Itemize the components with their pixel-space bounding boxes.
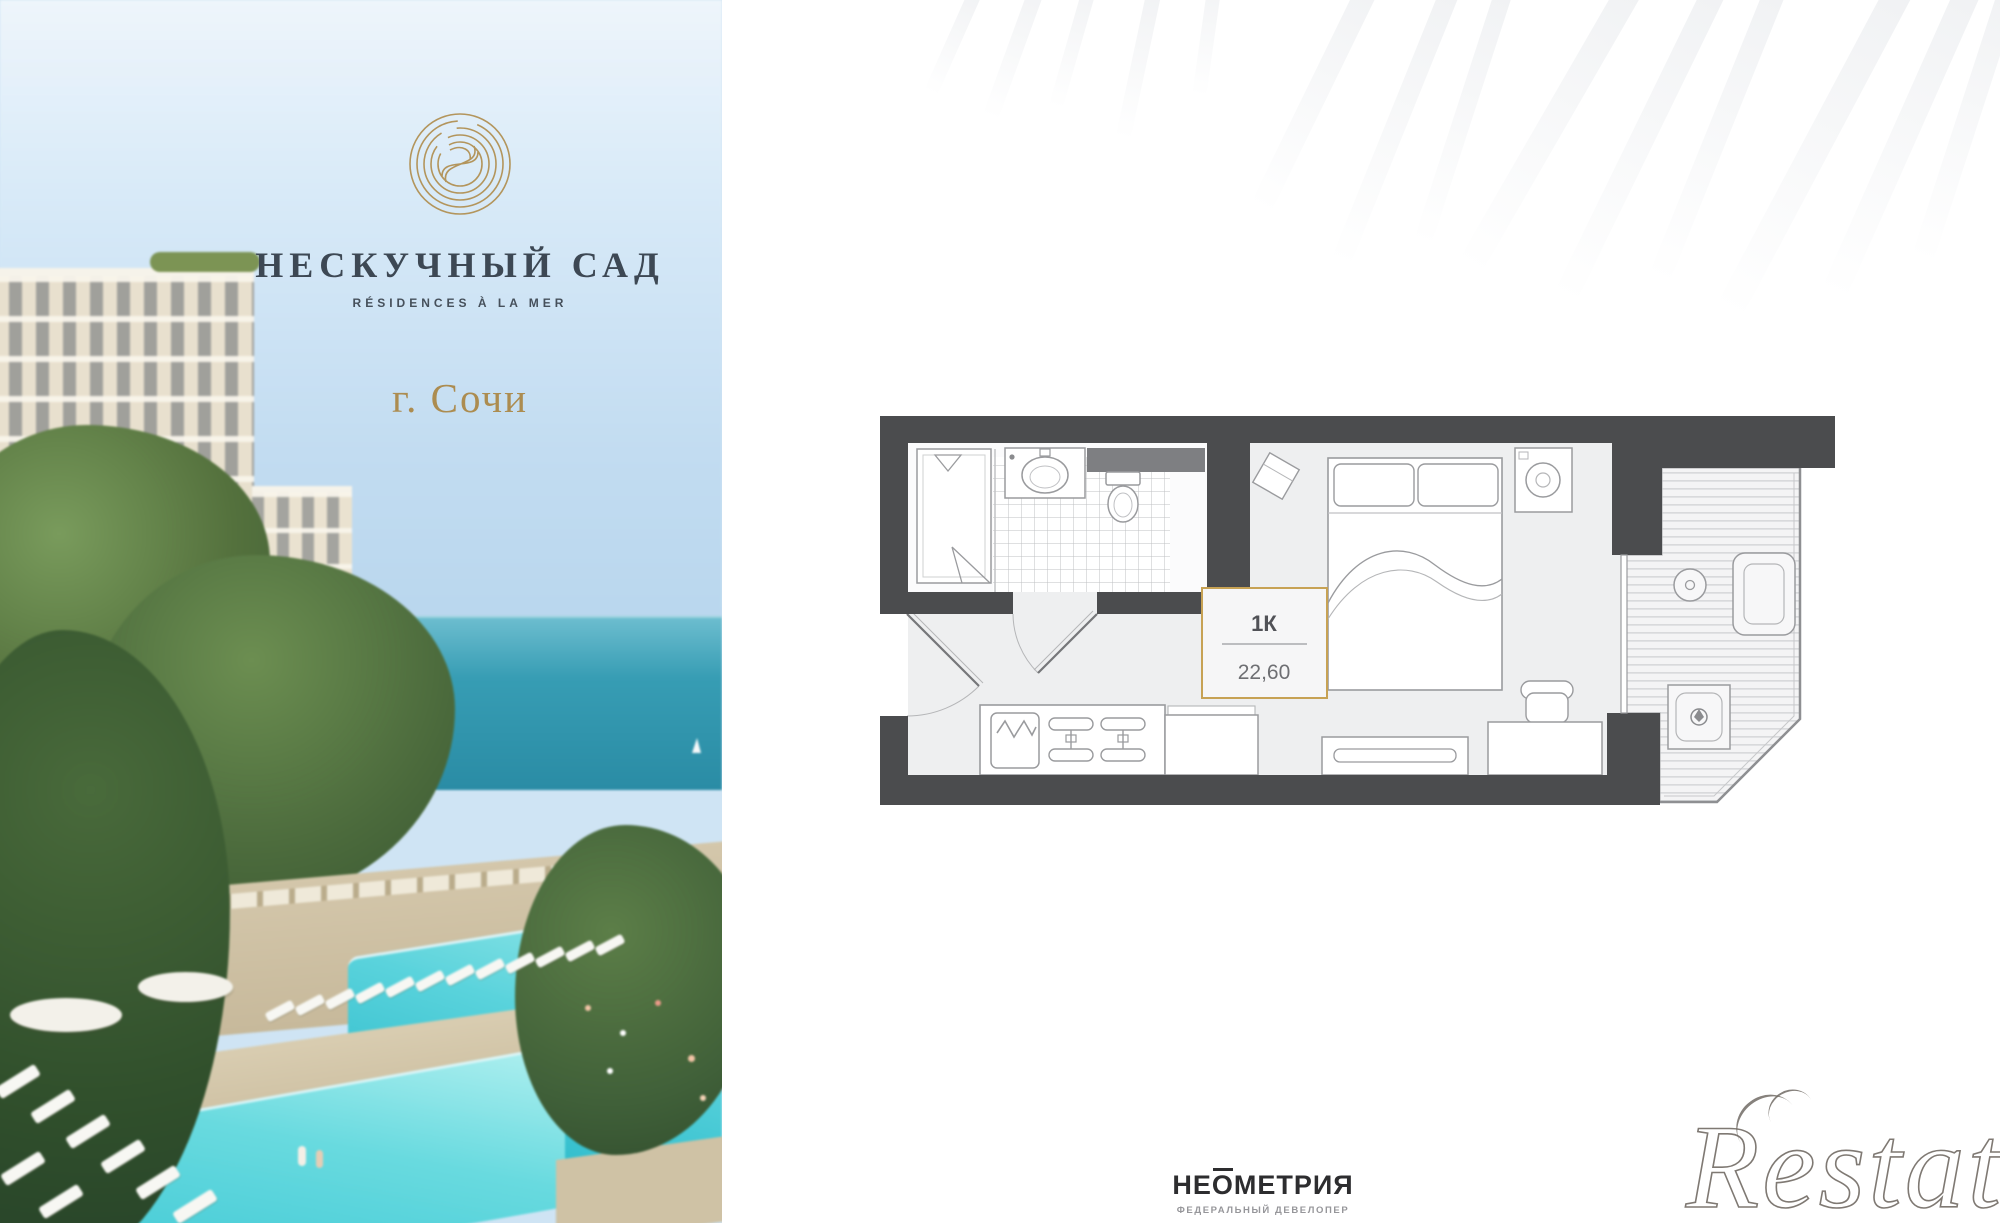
balcony-table (1674, 569, 1706, 601)
listing-image: НЕСКУЧНЫЙ САД RÉSIDENCES À LA MER г. Соч… (0, 0, 2000, 1223)
kitchen-counter (980, 705, 1165, 775)
developer-name: НЕОМЕТРИЯ (1172, 1170, 1353, 1201)
floor-plan: 1К 22,60 (878, 413, 1835, 825)
palm-frond-shadow (1189, 0, 1225, 120)
hero-photo: НЕСКУЧНЫЙ САД RÉSIDENCES À LA MER г. Соч… (0, 0, 722, 1223)
desk-chair (1521, 681, 1573, 723)
umbrella (138, 972, 233, 1002)
bathroom (908, 443, 1207, 592)
brand-subtitle: RÉSIDENCES À LA MER (200, 296, 720, 310)
tv (1334, 749, 1456, 762)
brand-logo-icon (406, 110, 514, 218)
swimmer (688, 1055, 695, 1062)
palm-frond-shadow (973, 0, 1053, 147)
balcony-chair (1668, 685, 1730, 749)
sailboat (692, 738, 701, 753)
toilet (1106, 472, 1140, 522)
restate-watermark: Restate (1686, 1098, 2000, 1223)
developer-logo: НЕОМЕТРИЯ ФЕДЕРАЛЬНЫЙ ДЕВЕЛОПЕР (1138, 1170, 1388, 1216)
person (298, 1146, 306, 1166)
bathroom-sink (1005, 448, 1085, 498)
tv-console (1322, 737, 1468, 775)
swimmer (620, 1030, 626, 1036)
swimmer (655, 1000, 661, 1006)
city-label: г. Сочи (200, 374, 720, 422)
unit-type-label: 1К (1251, 611, 1277, 636)
washing-machine (1515, 448, 1572, 512)
duct-shaft (1087, 448, 1205, 472)
pillow (1418, 464, 1498, 506)
developer-tagline: ФЕДЕРАЛЬНЫЙ ДЕВЕЛОПЕР (1138, 1205, 1388, 1216)
swimmer (585, 1005, 591, 1011)
developer-name-text: НЕОМЕТРИЯ (1172, 1170, 1353, 1200)
fridge (1165, 706, 1258, 775)
shower (917, 449, 991, 583)
palm-frond-shadow (1796, 0, 1991, 357)
swimmer (607, 1068, 613, 1074)
balcony-armchair (1733, 553, 1795, 635)
bed (1328, 458, 1502, 690)
balcony-window-door (1621, 555, 1627, 713)
umbrella (10, 998, 122, 1032)
palm-frond-shadow (1042, 0, 1102, 134)
brand-name: НЕСКУЧНЫЙ САД (200, 244, 720, 286)
developer-logo-macron (1213, 1168, 1233, 1171)
brand-block: НЕСКУЧНЫЙ САД RÉSIDENCES À LA MER г. Соч… (200, 0, 720, 422)
palm-frond-shadow (1398, 0, 1520, 294)
palm-frond-shadow (915, 0, 989, 116)
person (316, 1150, 323, 1168)
pillow (1334, 464, 1414, 506)
desk (1488, 722, 1602, 775)
palm-frond-shadow (1109, 0, 1165, 169)
area-label-box: 1К 22,60 (1202, 588, 1327, 698)
kitchen-sink (991, 713, 1039, 768)
swimmer (700, 1095, 706, 1101)
palm-frond-shadow (1626, 0, 1796, 340)
area-value-label: 22,60 (1238, 661, 1291, 684)
